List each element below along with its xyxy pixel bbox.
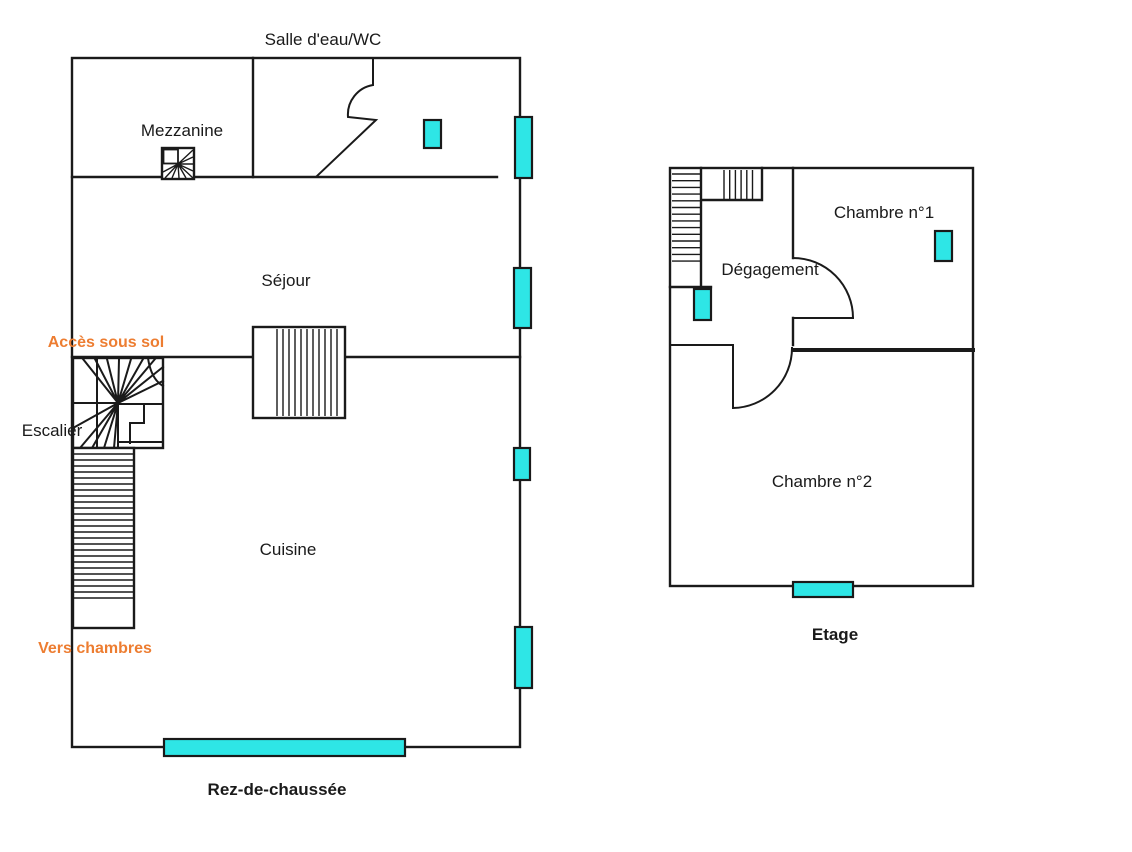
door-chambre-2 <box>733 345 792 408</box>
floor-plan-canvas: Salle d'eau/WC Mezzanine Séjour Cuisine … <box>0 0 1132 852</box>
straight-staircase <box>73 448 134 628</box>
label-vers-chambres: Vers chambres <box>38 640 152 658</box>
room-label-mezzanine: Mezzanine <box>141 121 223 141</box>
label-acces-sous-sol: Accès sous sol <box>48 334 165 352</box>
mezzanine-ladder <box>162 148 194 179</box>
room-label-salle-eau-wc: Salle d'eau/WC <box>265 30 382 50</box>
window-sejour-right <box>514 268 531 328</box>
room-label-chambre-1: Chambre n°1 <box>834 203 934 223</box>
window-bay-bottom <box>164 739 405 756</box>
upper-floor-outline <box>670 168 973 586</box>
window-cuisine-right-low <box>515 627 532 688</box>
room-label-degagement: Dégagement <box>721 260 818 280</box>
upper-floor-plan <box>670 168 973 597</box>
room-label-sejour: Séjour <box>261 271 310 291</box>
room-label-chambre-2: Chambre n°2 <box>772 472 872 492</box>
window-chambre-1 <box>935 231 952 261</box>
door-salle-eau <box>317 58 376 176</box>
floor-title-etage: Etage <box>812 625 858 645</box>
window-degagement <box>694 289 711 320</box>
window-chambre-2-bottom <box>793 582 853 597</box>
room-label-cuisine: Cuisine <box>260 540 317 560</box>
ground-floor-stair-hatch-block <box>253 327 345 418</box>
floor-title-rez-de-chaussee: Rez-de-chaussée <box>208 780 347 800</box>
window-cuisine-right-small <box>514 448 530 480</box>
window-salle-eau-interior <box>424 120 441 148</box>
label-escalier: Escalier <box>22 421 82 441</box>
window-salle-eau-right <box>515 117 532 178</box>
spiral-staircase <box>73 358 163 448</box>
